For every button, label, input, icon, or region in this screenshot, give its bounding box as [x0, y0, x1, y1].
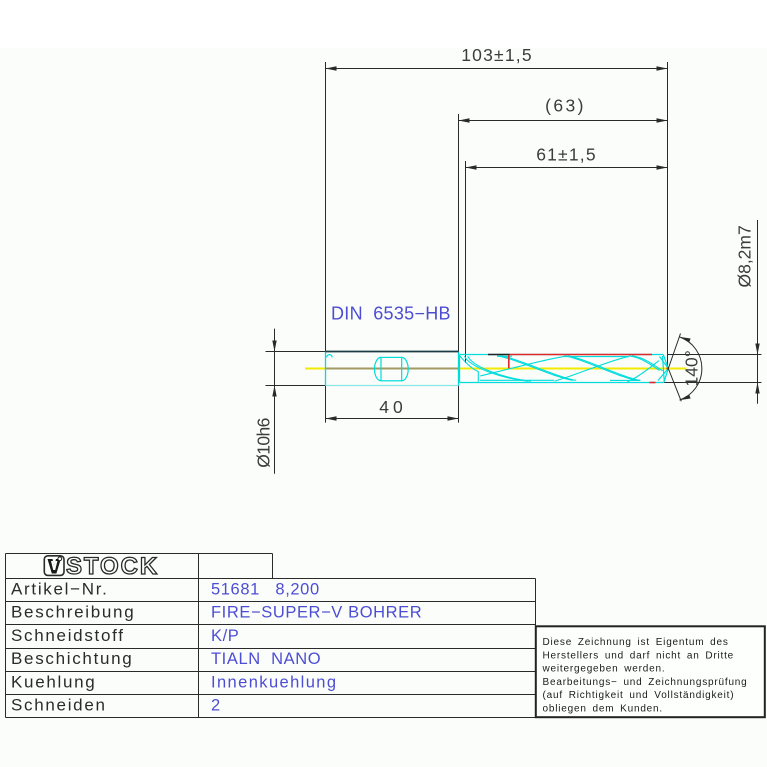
svg-text:(63): (63) — [545, 96, 586, 116]
svg-text:Schneidstoff: Schneidstoff — [11, 626, 125, 645]
svg-text:61±1,5: 61±1,5 — [536, 145, 597, 165]
svg-text:obliegen dem Kunden.: obliegen dem Kunden. — [543, 704, 663, 715]
svg-text:Beschichtung: Beschichtung — [11, 649, 133, 668]
svg-text:Beschreibung: Beschreibung — [11, 603, 135, 622]
svg-text:Diese Zeichnung ist Eigentum d: Diese Zeichnung ist Eigentum des — [543, 637, 729, 648]
svg-text:FIRE−SUPER−V BOHRER: FIRE−SUPER−V BOHRER — [211, 604, 422, 622]
svg-text:Ø10h6: Ø10h6 — [253, 418, 273, 468]
svg-text:2: 2 — [211, 697, 221, 715]
svg-text:K/P: K/P — [211, 627, 239, 645]
svg-text:(auf Richtigkeit und Vollständ: (auf Richtigkeit und Vollständigkeit) — [543, 690, 735, 701]
svg-text:103±1,5: 103±1,5 — [461, 45, 533, 65]
svg-text:Schneiden: Schneiden — [11, 696, 107, 715]
svg-text:Ø8,2m7: Ø8,2m7 — [735, 225, 755, 287]
svg-text:40: 40 — [379, 397, 406, 417]
svg-text:TIALN NANO: TIALN NANO — [211, 650, 321, 668]
svg-text:Kuehlung: Kuehlung — [11, 672, 96, 691]
svg-text:weitergegeben werden.: weitergegeben werden. — [542, 664, 666, 675]
svg-text:Artikel−Nr.: Artikel−Nr. — [11, 580, 109, 599]
svg-text:140°: 140° — [682, 350, 702, 386]
svg-text:51681 8,200: 51681 8,200 — [211, 581, 320, 599]
svg-text:DIN 6535−HB: DIN 6535−HB — [331, 304, 451, 324]
svg-text:STOCK: STOCK — [66, 553, 159, 580]
svg-text:Innenkuehlung: Innenkuehlung — [211, 673, 337, 691]
svg-text:Herstellers und darf nicht an: Herstellers und darf nicht an Dritte — [543, 650, 735, 661]
svg-text:Bearbeitungs− und Zeichnungspr: Bearbeitungs− und Zeichnungsprüfung — [543, 677, 748, 688]
